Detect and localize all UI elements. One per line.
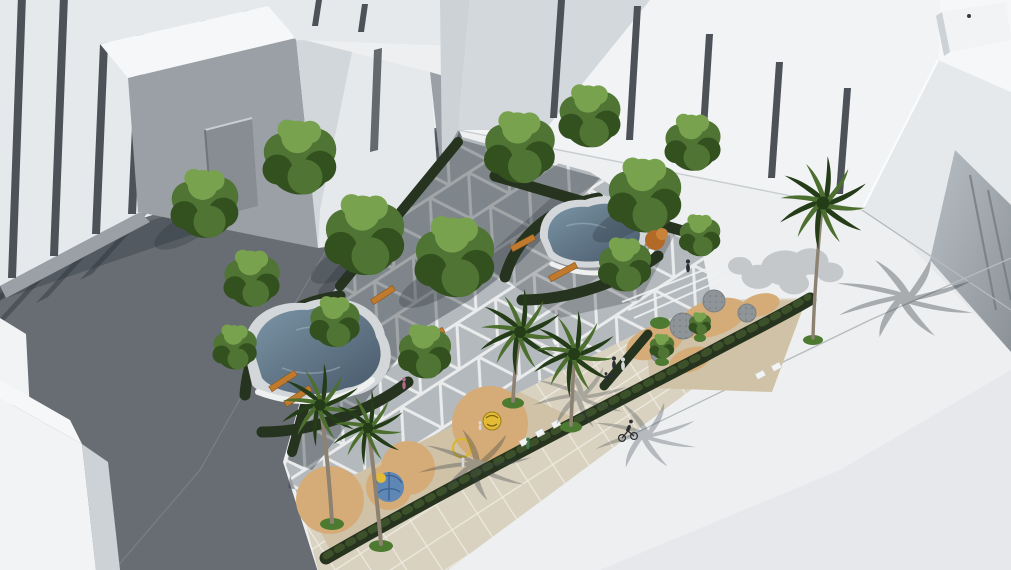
child — [479, 421, 482, 430]
stroller — [608, 374, 613, 378]
pedestrian — [402, 378, 406, 390]
rooftop-antenna — [967, 14, 971, 18]
pedestrian — [621, 357, 625, 370]
rendering-canvas — [0, 0, 1011, 570]
spinner-toy — [483, 412, 501, 430]
child — [605, 372, 608, 381]
pedestrian — [526, 438, 530, 450]
pad-texture — [738, 304, 756, 322]
dome-accent — [376, 473, 386, 483]
scene-svg — [0, 0, 1011, 570]
tree-base — [694, 334, 706, 342]
pad-texture — [703, 290, 725, 312]
pedestrian — [612, 356, 616, 369]
accent-shrub-highlight — [656, 228, 668, 240]
hedge-mound — [650, 317, 670, 329]
tree-base — [655, 358, 669, 366]
pedestrian — [686, 259, 690, 272]
child — [461, 458, 464, 468]
cyclist-head — [629, 420, 633, 424]
